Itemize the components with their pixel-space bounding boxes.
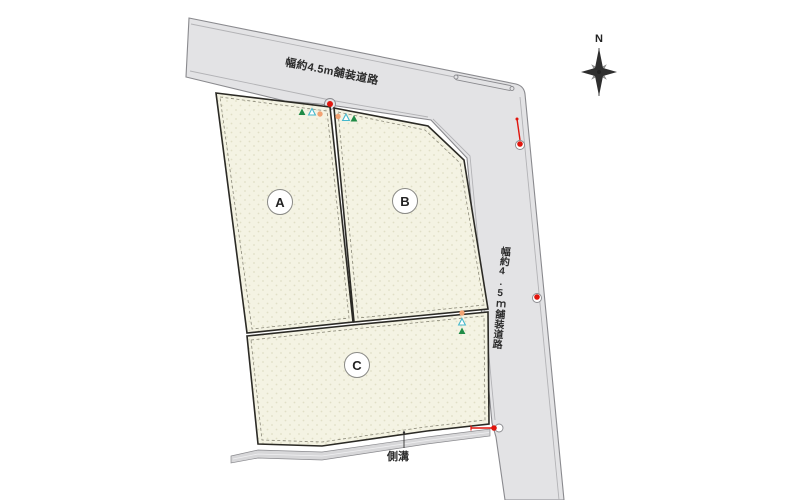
plot-b-label: B — [392, 188, 418, 214]
plot-a-label: A — [267, 189, 293, 215]
site-plan: 幅約4.5m舗装道路 幅約4.5ｍ舗装道路 側溝 N A B C — [0, 0, 800, 500]
red-pole-dot — [327, 101, 333, 107]
site-plan-svg — [0, 0, 800, 500]
orange-dot-marker — [317, 111, 322, 116]
plot-c-region — [247, 312, 489, 446]
red-pole-dot — [517, 141, 523, 147]
compass-rose — [581, 48, 617, 96]
plot-c-label: C — [344, 352, 370, 378]
utility-pole-2 — [534, 294, 540, 300]
gutter-label: 側溝 — [387, 448, 409, 464]
red-pole-dot — [491, 425, 497, 431]
orange-dot-marker — [459, 310, 464, 315]
orange-dot-marker — [335, 114, 340, 119]
compass-north-label: N — [591, 33, 607, 45]
